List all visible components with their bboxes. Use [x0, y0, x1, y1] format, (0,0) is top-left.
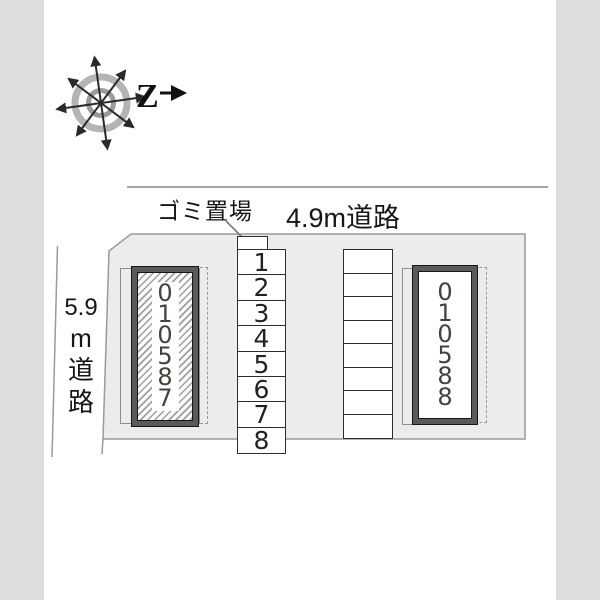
left-road-label-line: 5.9: [61, 294, 101, 322]
parking-cell-empty: [343, 273, 393, 298]
compass-rose-icon: Z: [57, 58, 187, 149]
site-boundary-tail: [102, 439, 103, 454]
parking-cell-empty: [343, 414, 393, 439]
left-road-line: [52, 246, 58, 457]
parking-cell-empty: [343, 320, 393, 345]
building-left-number: 010587: [154, 283, 176, 409]
garbage-area-label: ゴミ置場: [157, 192, 253, 226]
parking-cell: 6: [237, 376, 286, 403]
parking-cell-empty: [343, 249, 393, 274]
parking-column-numbered: 1 2 3 4 5 6 7 8: [237, 249, 286, 439]
building-left: 010587: [131, 266, 199, 427]
parking-cell: 8: [237, 427, 286, 454]
building-right-body: 010588: [418, 271, 472, 419]
parking-cell: 3: [237, 300, 286, 327]
north-label: Z: [136, 78, 159, 115]
left-road-label: 5.9 m 道 路: [61, 294, 101, 418]
parking-cell: 7: [237, 401, 286, 428]
compass: Z: [52, 55, 202, 155]
parking-cell: 1: [237, 249, 286, 276]
parking-cell: 5: [237, 351, 286, 378]
parking-cell-empty: [343, 343, 393, 368]
parking-cell-empty: [343, 367, 393, 392]
top-road-label: 4.9m道路: [286, 196, 400, 235]
parking-cell: 2: [237, 274, 286, 301]
building-left-body: 010587: [137, 272, 193, 421]
parking-cell-empty: [343, 296, 393, 321]
building-right-number: 010588: [434, 282, 456, 408]
left-road-label-line: 道: [61, 354, 101, 386]
building-left-number-strip: 010587: [152, 282, 179, 411]
left-road-label-line: 路: [61, 386, 101, 418]
site-plan-page: Z ゴミ置場 4.9m道路 5.9 m 道 路 1 2 3 4 5 6 7 8: [0, 0, 600, 600]
parking-cell-empty: [343, 390, 393, 415]
parking-column-empty: [343, 249, 393, 439]
building-right: 010588: [412, 265, 478, 425]
parking-cell: 4: [237, 325, 286, 352]
north-arrow-icon: [160, 85, 187, 101]
compass-needles: [57, 58, 144, 149]
left-road-label-line: m: [61, 322, 101, 354]
